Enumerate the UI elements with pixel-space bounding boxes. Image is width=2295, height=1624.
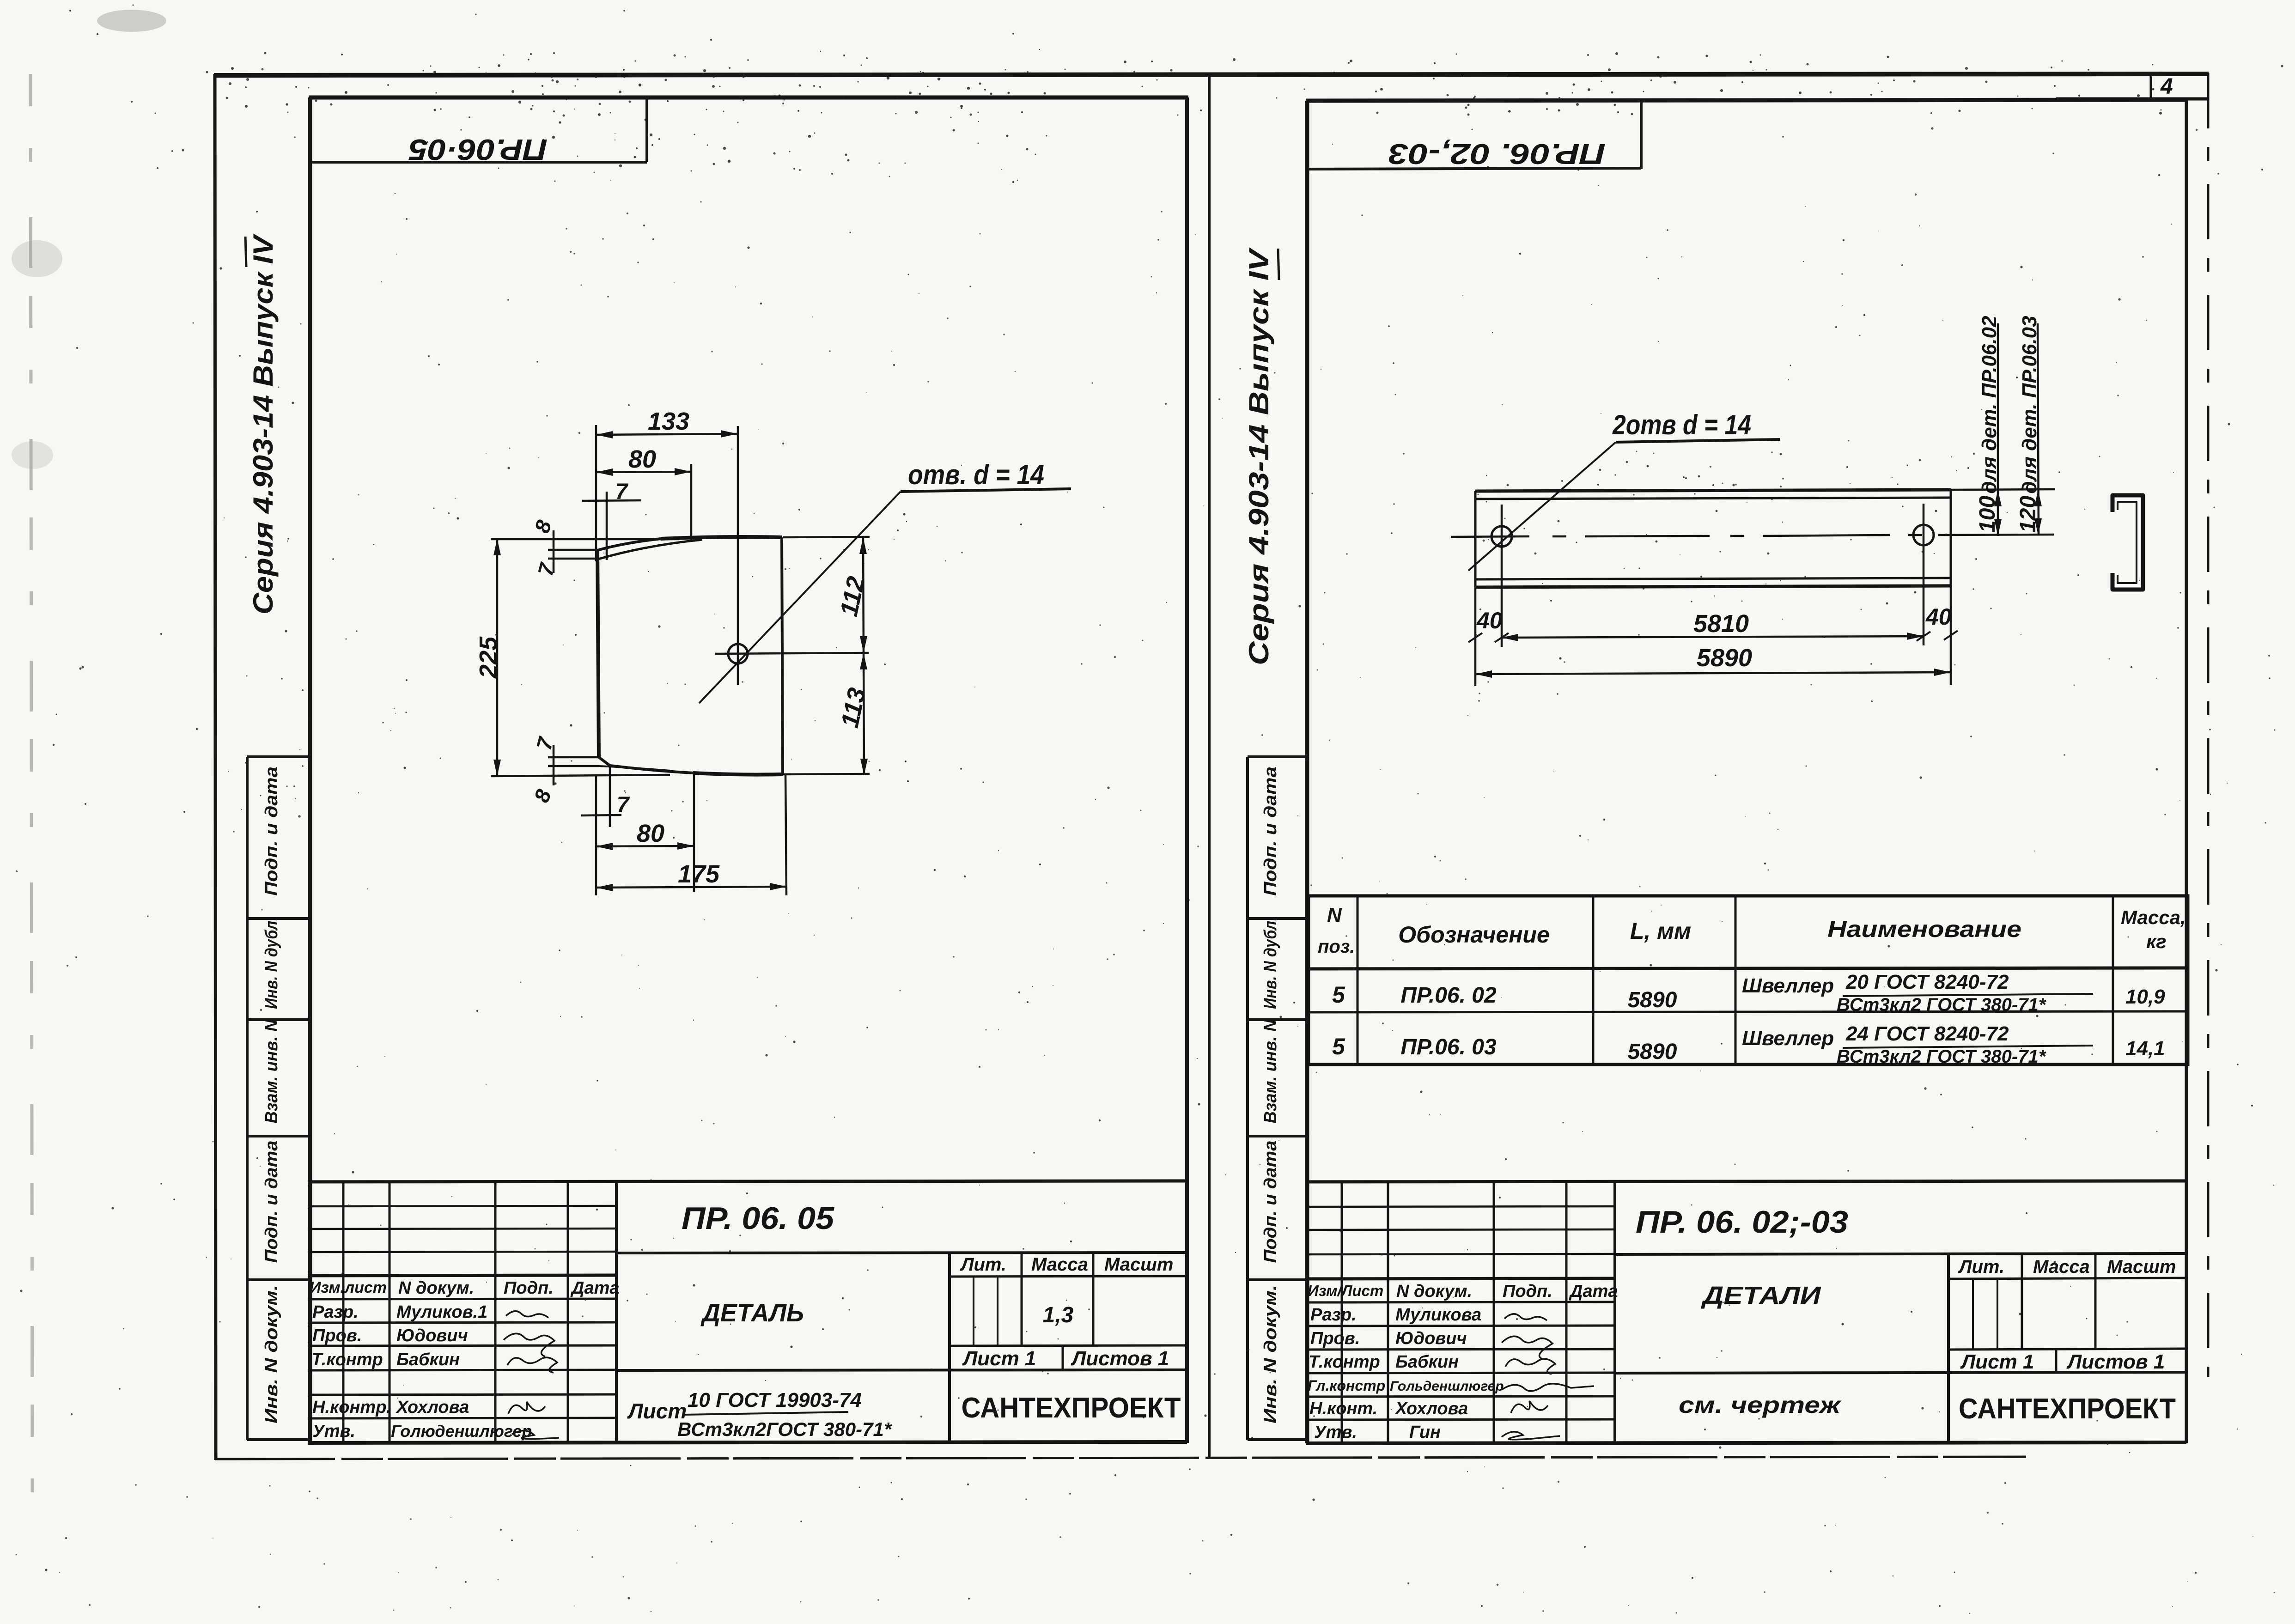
svg-text:поз.: поз. bbox=[1318, 937, 1355, 957]
svg-text:Инв. N докум.: Инв. N докум. bbox=[262, 1285, 281, 1423]
svg-text:Пров.: Пров. bbox=[1310, 1329, 1360, 1348]
svg-text:САНТЕХПРОЕКТ: САНТЕХПРОЕКТ bbox=[962, 1392, 1181, 1424]
svg-text:Гл.констр: Гл.констр bbox=[1308, 1377, 1385, 1394]
svg-text:Подп. и дата: Подп. и дата bbox=[1261, 1141, 1280, 1263]
svg-text:Инв. N дубл.: Инв. N дубл. bbox=[262, 917, 281, 1009]
svg-text:80: 80 bbox=[637, 820, 664, 847]
svg-text:Масса,: Масса, bbox=[2121, 906, 2186, 928]
svg-text:N: N bbox=[1327, 904, 1342, 926]
svg-text:Взам. инв. N: Взам. инв. N bbox=[1261, 1019, 1280, 1123]
svg-text:ПР. 06. 05: ПР. 06. 05 bbox=[682, 1201, 834, 1236]
svg-text:Пров.: Пров. bbox=[312, 1326, 362, 1345]
svg-text:Наименование: Наименование bbox=[1827, 916, 2021, 942]
svg-text:Инв. N докум.: Инв. N докум. bbox=[1261, 1285, 1280, 1423]
svg-text:Масшт: Масшт bbox=[2107, 1257, 2176, 1277]
svg-text:Подп. и дата: Подп. и дата bbox=[1261, 766, 1280, 896]
svg-text:Утв.: Утв. bbox=[1314, 1423, 1357, 1442]
svg-text:ПР.06. 03: ПР.06. 03 bbox=[1400, 1035, 1497, 1059]
svg-text:для дет. ПР.06.02: для дет. ПР.06.02 bbox=[1978, 316, 2001, 494]
svg-text:Бабкин: Бабкин bbox=[396, 1350, 460, 1369]
svg-text:Серия 4.903-14 Выпуск IV: Серия 4.903-14 Выпуск IV bbox=[248, 233, 279, 614]
svg-text:10,9: 10,9 bbox=[2125, 985, 2165, 1008]
svg-text:Юдович: Юдович bbox=[1395, 1329, 1467, 1348]
svg-text:7: 7 bbox=[617, 793, 630, 817]
svg-text:Юдович: Юдович bbox=[396, 1326, 468, 1345]
svg-text:Серия 4.903-14 Выпуск IV: Серия 4.903-14 Выпуск IV bbox=[1243, 247, 1274, 665]
svg-text:Хохлова: Хохлова bbox=[1394, 1399, 1468, 1418]
svg-text:Муликова: Муликова bbox=[1395, 1305, 1481, 1325]
svg-text:Лит.: Лит. bbox=[960, 1254, 1006, 1275]
svg-text:133: 133 bbox=[648, 408, 689, 435]
svg-text:кг: кг bbox=[2146, 931, 2167, 952]
svg-text:Н.контр.: Н.контр. bbox=[312, 1398, 391, 1417]
svg-text:Взам. инв. N: Взам. инв. N bbox=[262, 1019, 281, 1123]
svg-text:Изм.лист: Изм.лист bbox=[310, 1279, 387, 1296]
svg-text:ВСт3кл2ГОСТ 380-71*: ВСт3кл2ГОСТ 380-71* bbox=[677, 1418, 892, 1440]
svg-text:Дата: Дата bbox=[570, 1278, 620, 1298]
svg-text:Обозначение: Обозначение bbox=[1398, 922, 1550, 948]
svg-text:Т.контр: Т.контр bbox=[1309, 1352, 1380, 1372]
svg-text:10 ГОСТ 19903-74: 10 ГОСТ 19903-74 bbox=[688, 1389, 862, 1411]
svg-text:ПР.06·05: ПР.06·05 bbox=[408, 133, 548, 166]
svg-text:5890: 5890 bbox=[1697, 644, 1752, 672]
svg-text:80: 80 bbox=[628, 445, 656, 473]
svg-text:Лист 1: Лист 1 bbox=[1960, 1350, 2034, 1373]
svg-text:Подп.: Подп. bbox=[1503, 1282, 1552, 1301]
svg-text:Т.контр: Т.контр bbox=[311, 1350, 383, 1369]
svg-text:Листов 1: Листов 1 bbox=[2066, 1350, 2165, 1373]
svg-text:7: 7 bbox=[615, 480, 629, 504]
svg-text:Голюденшлюгер: Голюденшлюгер bbox=[391, 1422, 532, 1441]
svg-text:САНТЕХПРОЕКТ: САНТЕХПРОЕКТ bbox=[1959, 1393, 2176, 1425]
svg-text:100: 100 bbox=[1975, 496, 2000, 533]
svg-text:ДЕТАЛИ: ДЕТАЛИ bbox=[1701, 1282, 1821, 1309]
svg-text:Инв. N дубл.: Инв. N дубл. bbox=[1261, 917, 1280, 1009]
svg-text:Дата: Дата bbox=[1569, 1282, 1618, 1301]
svg-text:Подп. и дата: Подп. и дата bbox=[262, 766, 281, 896]
svg-text:40: 40 bbox=[1476, 608, 1503, 633]
svg-text:Швеллер: Швеллер bbox=[1742, 1027, 1834, 1050]
svg-text:Листов 1: Листов 1 bbox=[1071, 1347, 1169, 1370]
svg-text:см. чертеж: см. чертеж bbox=[1679, 1392, 1842, 1418]
svg-text:ВСт3кл2 ГОСТ 380-71*: ВСт3кл2 ГОСТ 380-71* bbox=[1837, 995, 2047, 1015]
svg-text:Масшт: Масшт bbox=[1104, 1254, 1173, 1275]
svg-text:5: 5 bbox=[1332, 1034, 1345, 1059]
svg-text:Н.конт.: Н.конт. bbox=[1309, 1399, 1377, 1418]
svg-text:20 ГОСТ 8240-72: 20 ГОСТ 8240-72 bbox=[1845, 971, 2009, 993]
svg-text:Лист 1: Лист 1 bbox=[962, 1347, 1036, 1370]
svg-text:N докум.: N докум. bbox=[398, 1278, 474, 1298]
svg-text:Разр.: Разр. bbox=[312, 1302, 359, 1322]
svg-text:Разр.: Разр. bbox=[1310, 1305, 1357, 1325]
svg-text:ПР.06. 02,-03: ПР.06. 02,-03 bbox=[1388, 138, 1606, 170]
svg-text:отв. d = 14: отв. d = 14 bbox=[908, 459, 1044, 490]
svg-text:24 ГОСТ 8240-72: 24 ГОСТ 8240-72 bbox=[1845, 1022, 2009, 1045]
svg-text:Гин: Гин bbox=[1409, 1423, 1441, 1442]
svg-text:4: 4 bbox=[2160, 74, 2173, 99]
svg-text:для дет. ПР.06.03: для дет. ПР.06.03 bbox=[2018, 316, 2041, 493]
svg-text:225: 225 bbox=[475, 636, 502, 679]
svg-text:Бабкин: Бабкин bbox=[1395, 1352, 1459, 1372]
svg-text:120: 120 bbox=[2016, 496, 2040, 533]
svg-text:Лит.: Лит. bbox=[1958, 1257, 2004, 1277]
svg-text:L, мм: L, мм bbox=[1630, 918, 1691, 944]
svg-text:Хохлова: Хохлова bbox=[396, 1398, 469, 1417]
svg-text:ДЕТАЛЬ: ДЕТАЛЬ bbox=[700, 1299, 804, 1327]
svg-text:Гольденшлюгер: Гольденшлюгер bbox=[1390, 1379, 1504, 1394]
svg-text:Изм/Лист: Изм/Лист bbox=[1308, 1282, 1383, 1299]
svg-text:ПР.06. 02: ПР.06. 02 bbox=[1400, 983, 1497, 1008]
svg-text:40: 40 bbox=[1925, 604, 1952, 630]
svg-text:1,3: 1,3 bbox=[1043, 1303, 1074, 1327]
svg-text:Подп.: Подп. bbox=[504, 1278, 554, 1298]
svg-text:ВСт3кл2 ГОСТ 380-71*: ВСт3кл2 ГОСТ 380-71* bbox=[1837, 1046, 2047, 1067]
svg-text:Швеллер: Швеллер bbox=[1742, 974, 1834, 997]
svg-text:Масса: Масса bbox=[1031, 1254, 1088, 1275]
svg-text:5: 5 bbox=[1332, 982, 1345, 1008]
svg-text:5890: 5890 bbox=[1628, 1040, 1677, 1064]
svg-text:5810: 5810 bbox=[1693, 610, 1749, 638]
svg-text:14,1: 14,1 bbox=[2125, 1037, 2165, 1060]
svg-text:175: 175 bbox=[678, 860, 720, 888]
svg-text:N докум.: N докум. bbox=[1396, 1282, 1472, 1301]
svg-text:Утв.: Утв. bbox=[312, 1422, 355, 1441]
svg-text:Масса: Масса bbox=[2033, 1257, 2090, 1277]
svg-text:Подп. и дата: Подп. и дата bbox=[262, 1141, 281, 1263]
svg-text:2отв d = 14: 2отв d = 14 bbox=[1612, 409, 1751, 440]
svg-text:5890: 5890 bbox=[1628, 988, 1677, 1012]
svg-text:ПР. 06. 02;-03: ПР. 06. 02;-03 bbox=[1636, 1204, 1848, 1240]
svg-text:Муликов.1: Муликов.1 bbox=[396, 1302, 487, 1322]
